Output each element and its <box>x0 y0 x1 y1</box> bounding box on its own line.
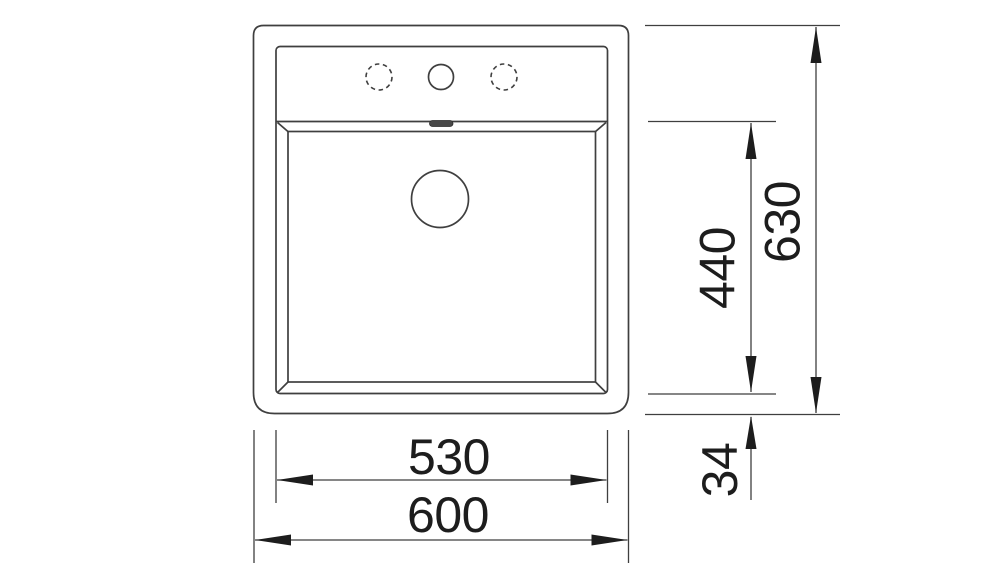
arrowhead-left <box>255 535 291 546</box>
drain-hole-icon <box>412 171 469 228</box>
dimension-label-600: 600 <box>407 487 489 543</box>
dimension-label-630: 630 <box>755 181 811 263</box>
arrowhead-right <box>592 535 628 546</box>
bevel-bottom-left <box>277 382 289 394</box>
arrowhead-bottom <box>811 377 822 413</box>
tap-hole-center-icon <box>429 65 454 90</box>
tap-hole-group <box>366 64 517 90</box>
technical-drawing: 530 600 440 630 <box>0 0 1000 576</box>
arrowhead-top <box>811 27 822 63</box>
sink-outer-edge <box>254 26 629 414</box>
arrowhead-top <box>746 123 757 159</box>
bevel-top-right <box>595 123 606 133</box>
tap-hole-right-dashed-icon <box>491 64 517 90</box>
arrowhead-bottom <box>746 356 757 392</box>
dimension-outer-depth: 630 <box>645 26 840 415</box>
rim-outer-edge <box>276 47 608 394</box>
dimension-front-rim: 34 <box>692 416 757 500</box>
sink-top-view <box>254 26 629 414</box>
arrowhead-left <box>277 475 313 486</box>
bevel-top-left <box>278 123 289 133</box>
basin-opening-edge <box>288 132 596 383</box>
arrowhead-right <box>571 475 607 486</box>
dimension-label-440: 440 <box>690 227 746 309</box>
tap-hole-left-dashed-icon <box>366 64 392 90</box>
dimension-label-34: 34 <box>692 443 748 498</box>
dimension-label-530: 530 <box>408 429 490 485</box>
bevel-bottom-right <box>595 382 607 394</box>
overflow-slot <box>430 121 454 127</box>
drawing-page: 530 600 440 630 <box>0 0 1000 576</box>
